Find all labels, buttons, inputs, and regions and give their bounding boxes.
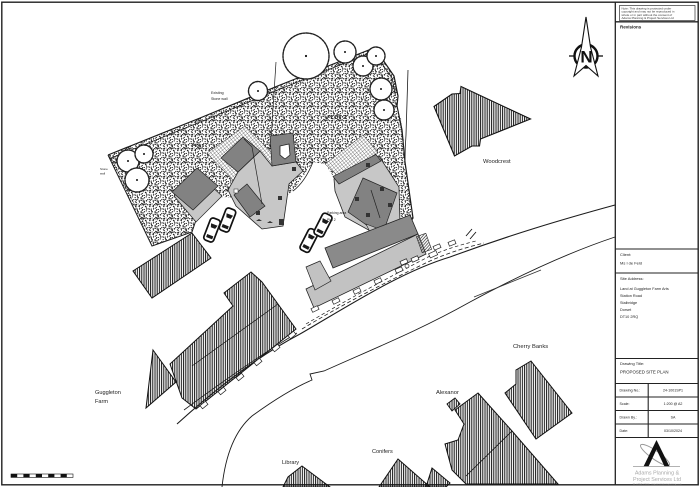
svg-text:Guggleton: Guggleton bbox=[95, 390, 121, 396]
svg-text:wall: wall bbox=[100, 172, 106, 176]
svg-text:Scale:: Scale: bbox=[620, 402, 630, 406]
svg-text:Drawing No.:: Drawing No.: bbox=[620, 389, 641, 393]
svg-text:Land at Guggleton Farm Arts: Land at Guggleton Farm Arts bbox=[620, 287, 669, 291]
svg-text:Ms I de Feld: Ms I de Feld bbox=[620, 261, 642, 266]
svg-text:Date:: Date: bbox=[620, 429, 629, 433]
svg-text:Client:: Client: bbox=[620, 252, 631, 257]
svg-text:Library: Library bbox=[282, 460, 299, 466]
svg-text:Plot 2: Plot 2 bbox=[327, 218, 336, 222]
svg-text:DT10 2RQ: DT10 2RQ bbox=[620, 315, 638, 319]
svg-text:SA: SA bbox=[671, 416, 676, 420]
svg-text:Tel: 07808 573165 enquiries@: Tel: 07808 573165 enquiries@adamsplannin… bbox=[632, 483, 682, 486]
svg-text:Stalbridge: Stalbridge bbox=[620, 301, 637, 305]
svg-text:Dorset: Dorset bbox=[620, 308, 632, 312]
svg-text:Existing: Existing bbox=[211, 91, 224, 95]
svg-text:Conifers: Conifers bbox=[372, 449, 393, 455]
svg-text:Alexanor: Alexanor bbox=[436, 390, 459, 396]
svg-text:Cherry Banks: Cherry Banks bbox=[513, 344, 548, 350]
svg-text:1:200 @ A2: 1:200 @ A2 bbox=[664, 402, 683, 406]
svg-text:N: N bbox=[580, 48, 592, 67]
svg-text:Drawing Title:: Drawing Title: bbox=[620, 361, 644, 366]
svg-text:Site Address:: Site Address: bbox=[620, 276, 644, 281]
svg-text:Woodcrest: Woodcrest bbox=[483, 159, 511, 165]
svg-text:Adams Planning &: Adams Planning & bbox=[635, 471, 680, 477]
svg-text:Farm: Farm bbox=[95, 399, 108, 405]
svg-text:Drawn By.:: Drawn By.: bbox=[620, 416, 637, 420]
svg-text:Station Road: Station Road bbox=[620, 294, 642, 298]
svg-text:Adams Planning & Project Servi: Adams Planning & Project Services Ltd bbox=[622, 16, 675, 20]
svg-text:Parking area: Parking area bbox=[327, 211, 346, 215]
svg-text:PROPOSED SITE PLAN: PROPOSED SITE PLAN bbox=[620, 370, 669, 375]
svg-text:24-1001SP1: 24-1001SP1 bbox=[663, 389, 683, 393]
svg-text:Stone: Stone bbox=[100, 167, 108, 171]
svg-text:Stone wall: Stone wall bbox=[211, 97, 228, 101]
svg-text:03/10/2024: 03/10/2024 bbox=[664, 429, 682, 433]
svg-text:PLOT 2: PLOT 2 bbox=[327, 115, 346, 121]
svg-text:Plot 1: Plot 1 bbox=[192, 143, 205, 148]
svg-text:Project Services Ltd: Project Services Ltd bbox=[633, 477, 681, 483]
svg-text:Revisions: Revisions bbox=[620, 25, 642, 30]
